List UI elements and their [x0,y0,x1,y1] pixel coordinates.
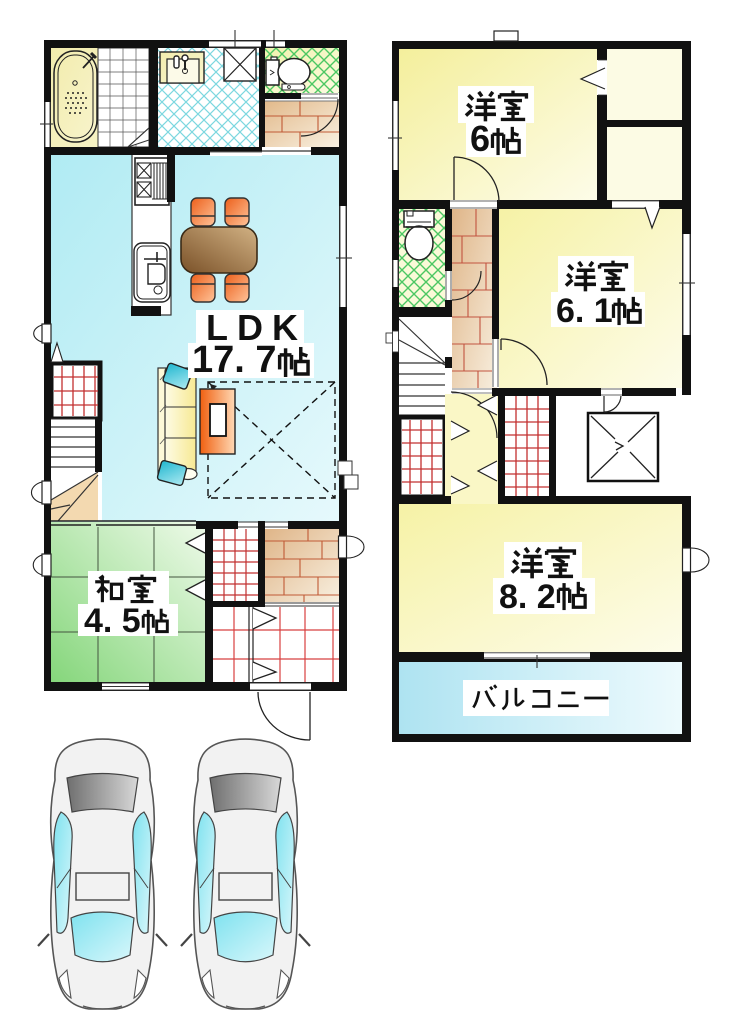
svg-text:8. 2: 8. 2 [499,578,556,616]
svg-text:4. 5: 4. 5 [84,602,141,640]
svg-text:6: 6 [470,118,490,159]
svg-text:17. 7: 17. 7 [192,339,277,381]
svg-text:6. 1: 6. 1 [556,292,613,330]
